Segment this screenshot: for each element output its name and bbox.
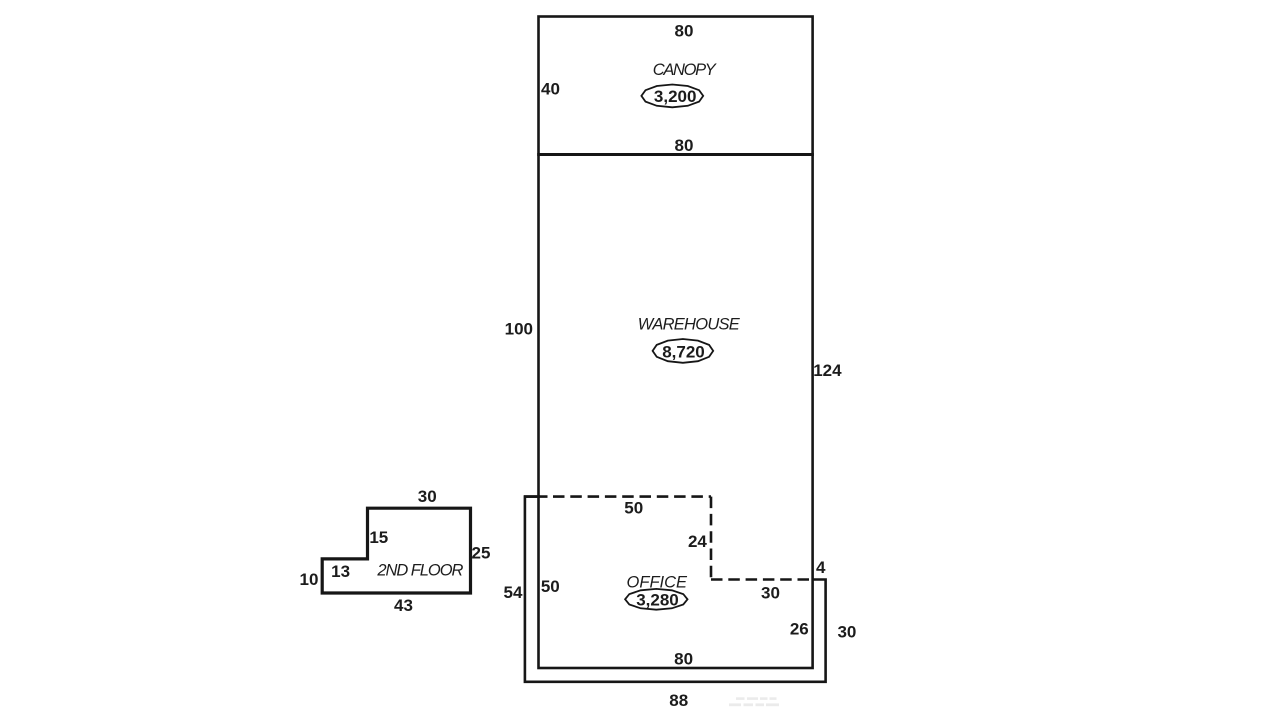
svg-text:3,280: 3,280	[636, 591, 679, 610]
svg-text:100: 100	[505, 320, 533, 339]
svg-text:24: 24	[688, 532, 707, 551]
svg-text:30: 30	[837, 622, 856, 641]
svg-text:3,200: 3,200	[654, 87, 697, 106]
svg-text:80: 80	[675, 22, 694, 41]
svg-text:54: 54	[504, 583, 523, 602]
svg-text:40: 40	[541, 80, 560, 99]
svg-text:15: 15	[369, 528, 388, 547]
svg-text:13: 13	[331, 562, 350, 581]
svg-text:30: 30	[761, 584, 780, 603]
svg-text:43: 43	[394, 596, 413, 615]
svg-text:50: 50	[541, 577, 560, 596]
svg-text:10: 10	[300, 570, 319, 589]
svg-text:WAREHOUSE: WAREHOUSE	[638, 315, 741, 333]
svg-text:4: 4	[816, 558, 826, 577]
svg-text:26: 26	[790, 619, 809, 638]
svg-text:80: 80	[675, 136, 694, 155]
svg-text:CANOPY: CANOPY	[653, 61, 717, 79]
svg-text:124: 124	[813, 361, 842, 380]
svg-text:2ND FLOOR: 2ND FLOOR	[376, 561, 463, 579]
svg-text:30: 30	[418, 487, 437, 506]
svg-text:8,720: 8,720	[662, 343, 705, 362]
svg-text:88: 88	[669, 691, 688, 710]
svg-text:80: 80	[674, 650, 693, 669]
svg-text:50: 50	[624, 499, 643, 518]
svg-text:25: 25	[472, 543, 491, 562]
